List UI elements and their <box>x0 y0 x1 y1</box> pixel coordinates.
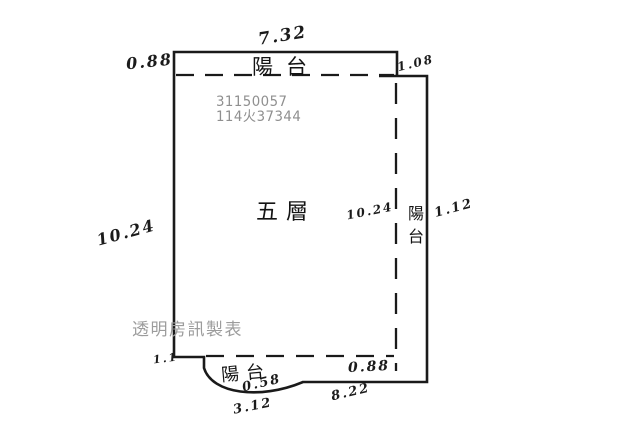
registration-number-1: 31150057 <box>216 95 288 110</box>
registration-number-2: 114火37344 <box>216 110 301 125</box>
floorplan-drawing <box>0 0 640 441</box>
dimension-bottom-inner: 0.88 <box>348 358 391 376</box>
balcony-top-label: 陽台 <box>252 51 320 81</box>
floorplan-canvas: 陽台 31150057 114火37344 五層 陽台 陽台 透明房訊製表 7.… <box>0 0 640 441</box>
watermark-text: 透明房訊製表 <box>132 315 243 340</box>
balcony-right-label: 陽台 <box>401 205 425 251</box>
floor-unit-label: 五層 <box>256 194 316 226</box>
